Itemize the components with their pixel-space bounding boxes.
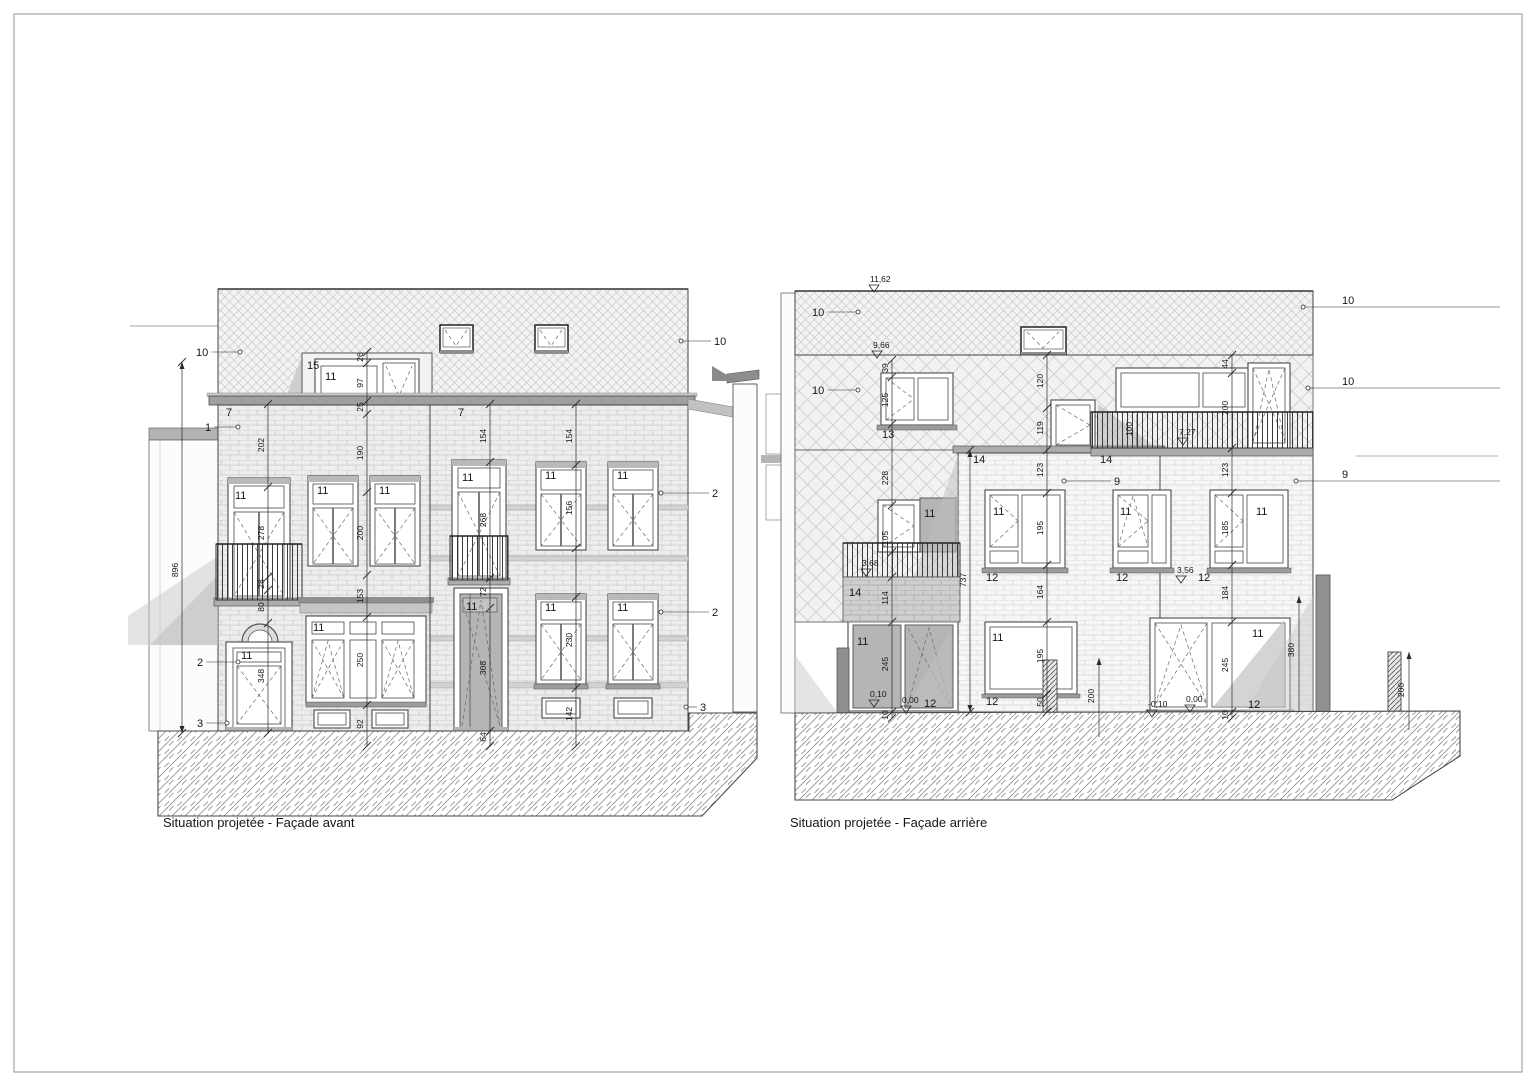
window	[536, 462, 586, 550]
component-label: 7	[458, 407, 464, 419]
window	[606, 594, 660, 689]
component-label: 15	[307, 360, 319, 372]
rear-title: Situation projetée - Façade arrière	[790, 815, 987, 830]
dim-label: 97	[355, 378, 365, 388]
dim-label: 190	[355, 446, 365, 460]
rear-neighbor-left	[761, 293, 795, 713]
dim-label: 25	[355, 402, 365, 412]
component-label: 11	[313, 622, 324, 634]
level-value: 3,68	[862, 558, 879, 568]
dim-label: 10	[1220, 710, 1230, 720]
level-value: -0,10	[1148, 699, 1168, 709]
component-label: 12	[1116, 572, 1128, 584]
dim-label: 308	[478, 661, 488, 675]
dim-label: 380	[1286, 643, 1296, 657]
dim-label: 184	[1220, 586, 1230, 600]
dim-label: 28	[256, 579, 266, 589]
component-label: 11	[924, 508, 935, 520]
callout-label: 2	[712, 607, 718, 619]
dim-label: 114	[880, 591, 890, 605]
level-value: 3,56	[1177, 565, 1194, 575]
rear-facade-drawing: 1010101099131414141111111111111112121212…	[761, 274, 1500, 830]
shadow	[795, 655, 837, 712]
component-label: 11	[617, 602, 628, 614]
fence-post	[1316, 575, 1330, 730]
callout-label: 9	[1342, 469, 1348, 481]
component-label: 11	[325, 371, 336, 383]
dim-label: 80	[256, 602, 266, 612]
callout-label: 2	[712, 488, 718, 500]
window	[608, 462, 658, 550]
leader-dot	[236, 660, 240, 664]
level-value: 9,66	[873, 340, 890, 350]
dim-label: 123	[1220, 463, 1230, 477]
component-label: 13	[882, 429, 894, 441]
dim-label: 92	[355, 719, 365, 729]
dim-label: 250	[355, 653, 365, 667]
dim-label: 39	[880, 363, 890, 373]
leader-dot	[684, 705, 688, 709]
dim-label: 164	[1035, 585, 1045, 599]
leader-dot	[659, 491, 663, 495]
component-label: 14	[973, 454, 985, 466]
drawing-sheet: 1010123223771511111111111111111111111189…	[0, 0, 1536, 1086]
dim-label: 185	[1220, 521, 1230, 535]
front-title: Situation projetée - Façade avant	[163, 815, 355, 830]
skylight-icon	[440, 325, 473, 354]
balcony-railing	[843, 543, 960, 622]
callout-label: 10	[1342, 376, 1354, 388]
component-label: 12	[1198, 572, 1210, 584]
dim-label: 26	[355, 352, 365, 362]
front-neighbor-right	[688, 366, 759, 712]
component-label: 11	[992, 632, 1003, 644]
callout-label: 10	[812, 385, 824, 397]
level-value: 7,27	[1179, 427, 1196, 437]
dim-label: 120	[1035, 374, 1045, 388]
leader-dot	[225, 721, 229, 725]
dim-label: 10	[880, 710, 890, 720]
leader-dot	[856, 310, 860, 314]
front-facade-drawing: 1010123223771511111111111111111111111189…	[128, 289, 759, 830]
leader-dot	[679, 339, 683, 343]
dim-label: 245	[880, 657, 890, 671]
dim-label: 195	[1035, 649, 1045, 663]
leader-dot	[1306, 386, 1310, 390]
component-label: 11	[617, 470, 628, 482]
skylight-icon	[1021, 327, 1066, 356]
component-label: 11	[857, 636, 868, 648]
dim-label: 200	[1220, 401, 1230, 415]
callout-label: 3	[197, 718, 203, 730]
callout-label: 10	[1342, 295, 1354, 307]
window	[534, 594, 588, 689]
component-label: 11	[466, 601, 477, 613]
level-value: 11,62	[870, 274, 891, 284]
component-label: 7	[226, 407, 232, 419]
dim-label: 123	[1035, 463, 1045, 477]
component-label: 11	[462, 472, 473, 484]
window	[982, 490, 1068, 573]
window	[370, 476, 420, 566]
window	[308, 476, 358, 566]
level-value: 0,00	[902, 695, 919, 705]
level-value: 0,10	[870, 689, 887, 699]
component-label: 11	[241, 650, 252, 662]
dim-label: 154	[564, 429, 574, 443]
rear-ground	[795, 711, 1460, 800]
dim-label: 50	[1035, 697, 1045, 707]
component-label: 12	[1248, 699, 1260, 711]
dim-label: 228	[880, 471, 890, 485]
entrance-door	[226, 642, 292, 731]
dim-label: 142	[564, 707, 574, 721]
dim-label: 230	[564, 633, 574, 647]
dim-label: 896	[170, 563, 180, 577]
dim-label: 125	[880, 393, 890, 407]
component-label: 12	[986, 572, 998, 584]
dim-label: 348	[256, 669, 266, 683]
leader-dot	[1301, 305, 1305, 309]
dim-label: 268	[478, 513, 488, 527]
plan-sheet-svg: 1010123223771511111111111111111111111189…	[0, 0, 1536, 1086]
dim-label: 64	[478, 732, 488, 742]
front-neighbor-left	[130, 326, 218, 731]
dim-label: 156	[564, 501, 574, 515]
component-label: 11	[993, 506, 1004, 518]
dim-label: 154	[478, 429, 488, 443]
dim-label: 200	[1086, 689, 1096, 703]
dim-label: 100	[1124, 422, 1134, 436]
callout-label: 10	[714, 336, 726, 348]
dim-label: 737	[958, 573, 968, 587]
level-value: 0,00	[1186, 694, 1203, 704]
callout-label: 10	[812, 307, 824, 319]
component-label: 11	[317, 485, 328, 497]
component-label: 11	[1120, 506, 1131, 518]
dim-arrow	[180, 362, 185, 369]
component-label: 11	[545, 602, 556, 614]
leader-dot	[238, 350, 242, 354]
dim-label: 119	[1035, 421, 1045, 435]
component-label: 14	[849, 587, 861, 599]
dim-label: 44	[1220, 359, 1230, 369]
component-label: 12	[986, 696, 998, 708]
dim-label: 278	[256, 526, 266, 540]
component-label: 11	[545, 470, 556, 482]
window	[1110, 490, 1174, 573]
dim-label: 105	[880, 531, 890, 545]
component-label: 11	[1252, 628, 1263, 640]
leader-dot	[236, 425, 240, 429]
leader-dot	[856, 388, 860, 392]
dim-label: 153	[355, 589, 365, 603]
dim-label: 202	[256, 438, 266, 452]
component-label: 11	[1256, 506, 1267, 518]
component-label: 12	[924, 698, 936, 710]
dim-label: 200	[1396, 683, 1406, 697]
callout-label: 3	[700, 702, 706, 714]
dim-label: 245	[1220, 658, 1230, 672]
leader-dot	[1062, 479, 1066, 483]
front-cornice-band	[209, 396, 695, 405]
callout-label: 2	[197, 657, 203, 669]
terrace-floor-band	[1091, 448, 1313, 456]
dim-label: 195	[1035, 521, 1045, 535]
skylight-icon	[535, 325, 568, 354]
leader-dot	[1294, 479, 1298, 483]
component-label: 14	[1100, 454, 1112, 466]
dim-label: 200	[355, 526, 365, 540]
entrance-door	[454, 588, 508, 731]
roof-level-window	[1051, 400, 1095, 450]
component-label: 11	[235, 490, 246, 502]
leader-dot	[659, 610, 663, 614]
component-label: 11	[379, 485, 390, 497]
callout-label: 10	[196, 347, 208, 359]
dim-label: 72	[478, 587, 488, 597]
front-roof	[218, 289, 688, 405]
callout-label: 9	[1114, 476, 1120, 488]
callout-label: 1	[205, 422, 211, 434]
